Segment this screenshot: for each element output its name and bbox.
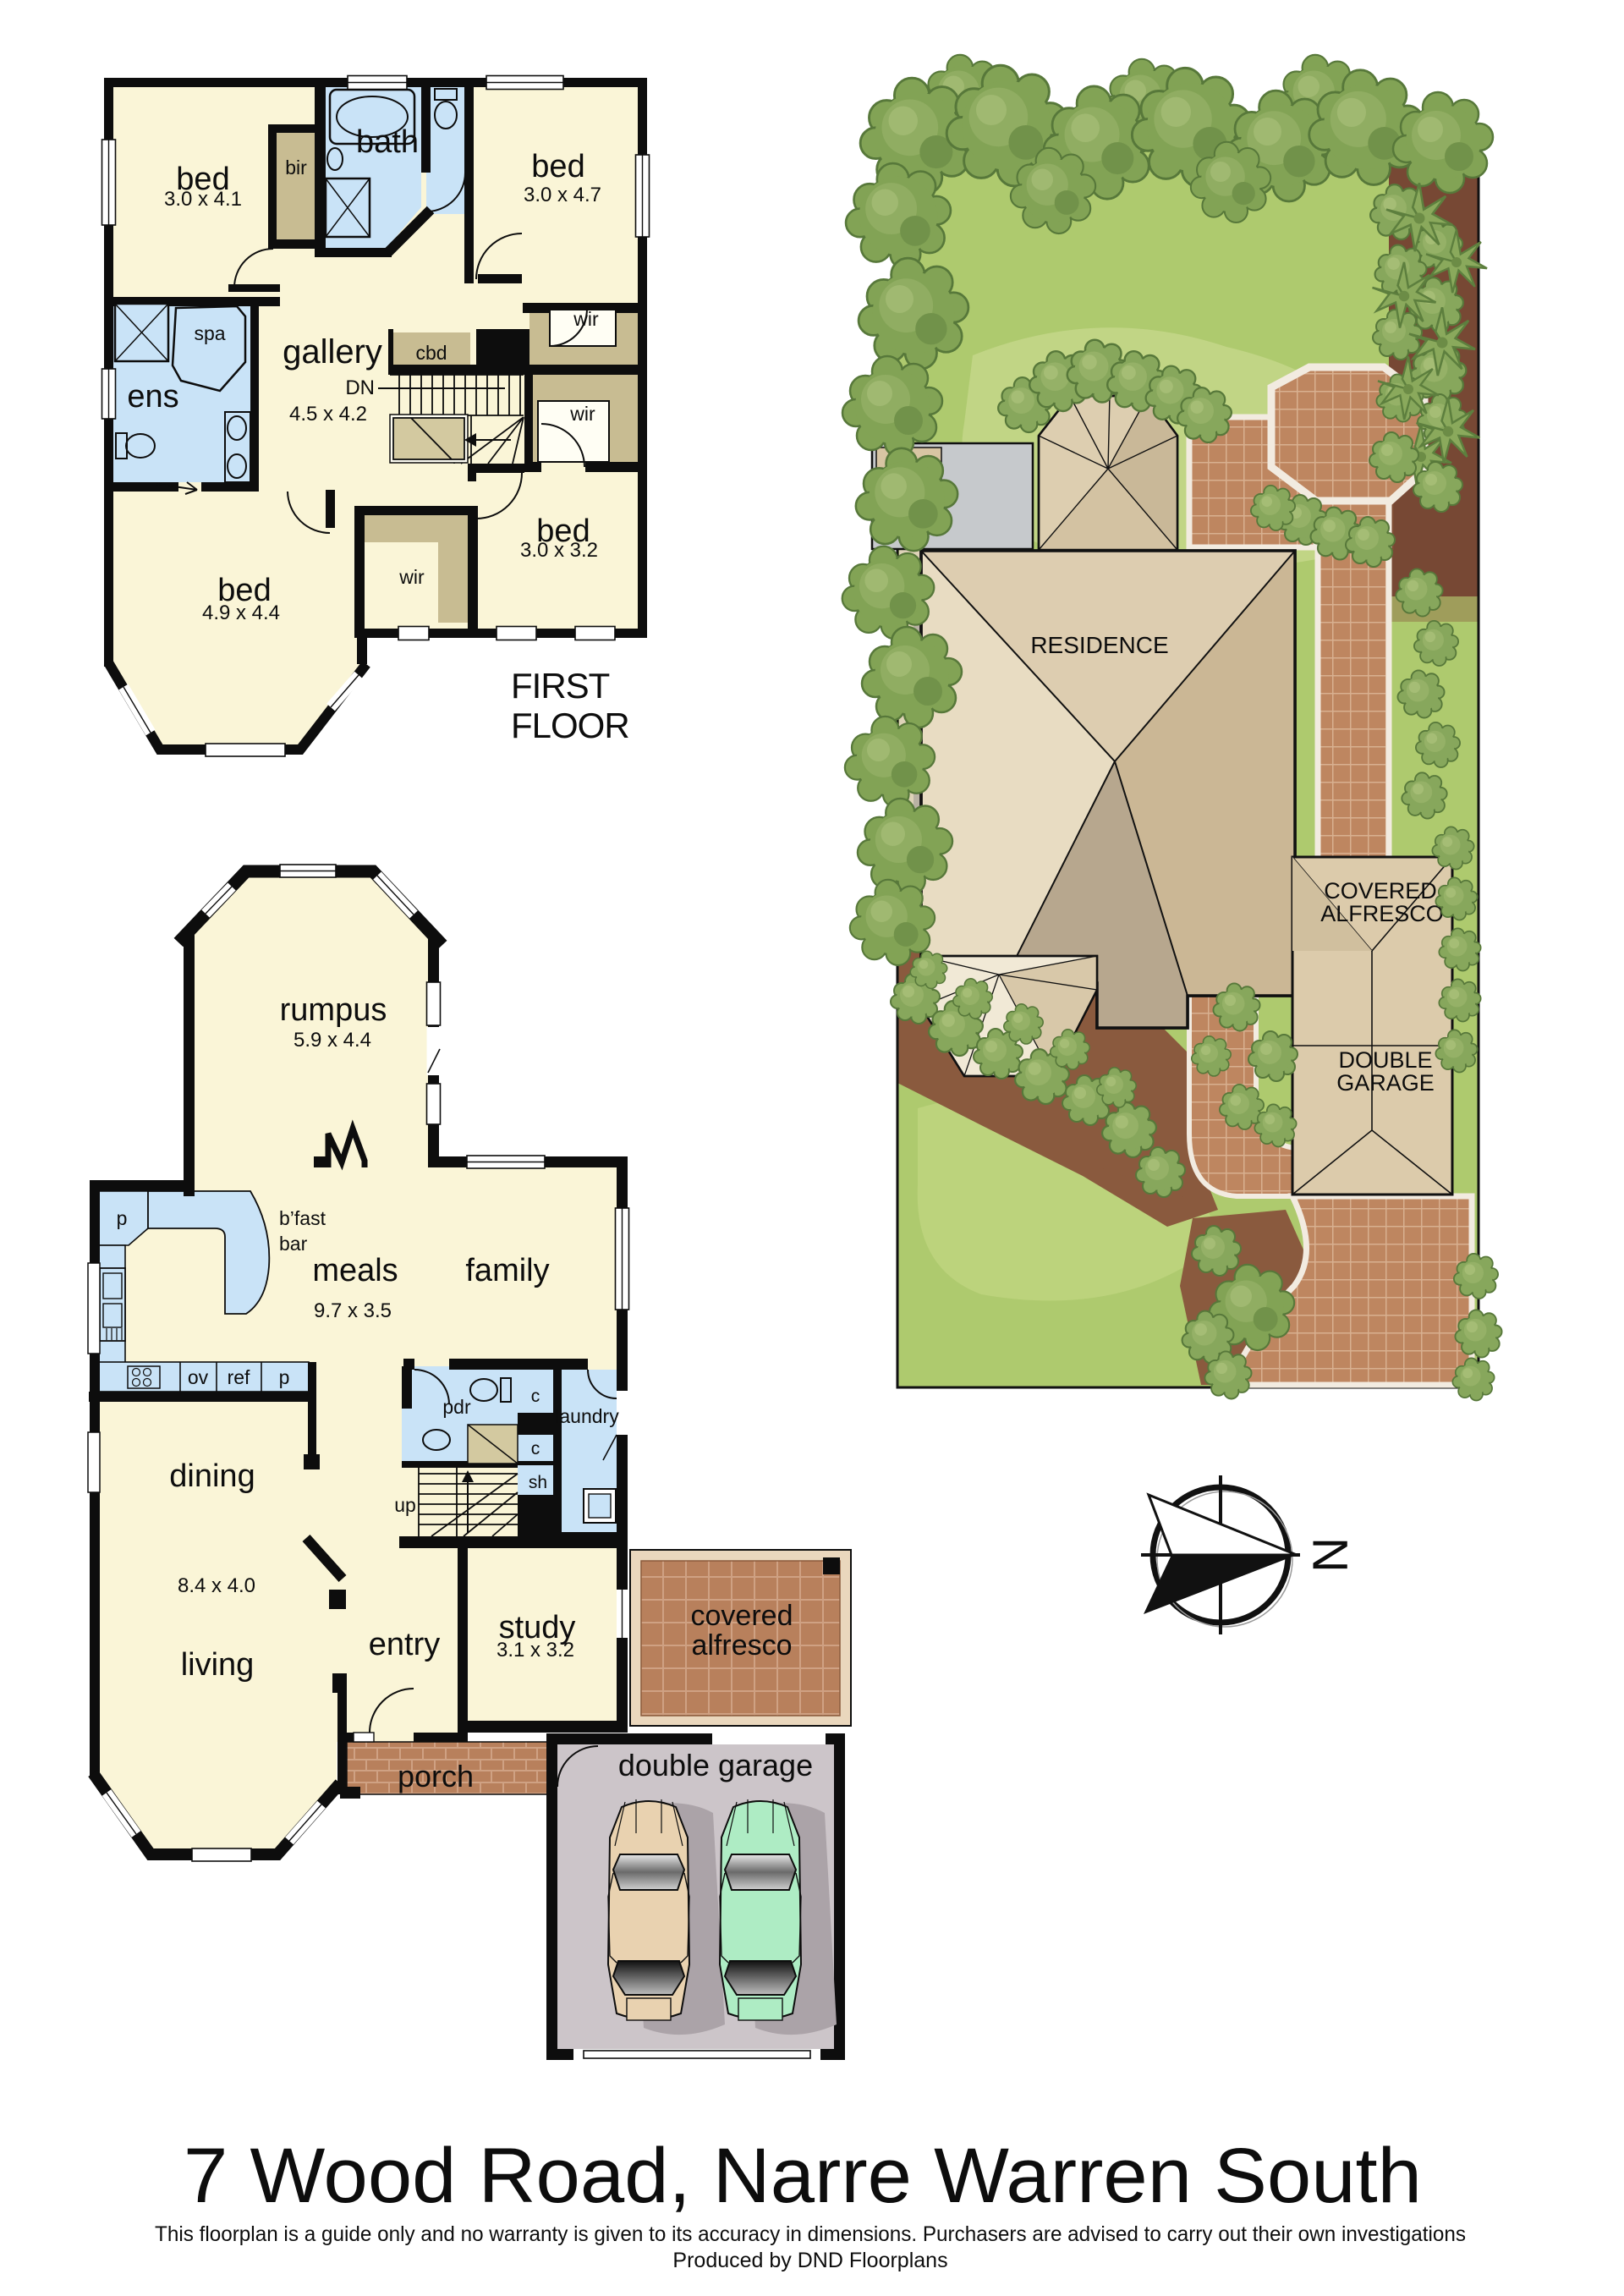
svg-text:Produced by DND Floorplans: Produced by DND Floorplans <box>672 2249 947 2272</box>
svg-text:DOUBLE: DOUBLE <box>1338 1047 1432 1073</box>
svg-text:porch: porch <box>398 1759 474 1793</box>
svg-text:4.5 x 4.2: 4.5 x 4.2 <box>289 403 367 426</box>
svg-text:entry: entry <box>369 1627 440 1662</box>
svg-text:bed: bed <box>531 149 584 184</box>
svg-text:7 Wood Road, Narre Warren Sout: 7 Wood Road, Narre Warren South <box>184 2133 1422 2219</box>
svg-text:up: up <box>394 1494 416 1516</box>
svg-text:pdr: pdr <box>442 1396 471 1418</box>
svg-text:spa: spa <box>194 322 225 344</box>
svg-text:wir: wir <box>398 566 425 588</box>
svg-text:b’fast: b’fast <box>279 1207 326 1229</box>
svg-text:wir: wir <box>569 403 595 425</box>
svg-text:family: family <box>465 1253 549 1288</box>
svg-text:c: c <box>531 1387 540 1406</box>
svg-text:bar: bar <box>279 1233 308 1255</box>
svg-text:ov: ov <box>188 1366 209 1388</box>
svg-text:living: living <box>181 1647 255 1683</box>
svg-text:DN: DN <box>345 376 375 399</box>
svg-text:alfresco: alfresco <box>691 1629 792 1662</box>
svg-text:ALFRESCO: ALFRESCO <box>1320 901 1444 926</box>
svg-text:N: N <box>1303 1537 1358 1573</box>
svg-text:double garage: double garage <box>618 1748 813 1782</box>
svg-text:COVERED: COVERED <box>1324 878 1437 904</box>
svg-text:GARAGE: GARAGE <box>1336 1070 1435 1096</box>
svg-text:FIRST: FIRST <box>511 666 610 706</box>
svg-text:5.9 x 4.4: 5.9 x 4.4 <box>294 1029 371 1052</box>
svg-text:p: p <box>117 1207 128 1229</box>
svg-text:dining: dining <box>169 1458 255 1494</box>
svg-text:3.0 x 3.2: 3.0 x 3.2 <box>520 539 598 562</box>
svg-text:8.4 x 4.0: 8.4 x 4.0 <box>178 1574 255 1597</box>
svg-text:RESIDENCE: RESIDENCE <box>1030 632 1168 658</box>
svg-text:sh: sh <box>529 1473 547 1492</box>
svg-text:laundry: laundry <box>555 1405 619 1427</box>
svg-text:cbd: cbd <box>415 342 447 364</box>
svg-text:bath: bath <box>356 124 419 160</box>
svg-text:wir: wir <box>573 308 599 330</box>
svg-text:gallery: gallery <box>283 333 382 371</box>
svg-text:covered: covered <box>691 1600 793 1632</box>
svg-text:ens: ens <box>127 379 178 415</box>
svg-text:rumpus: rumpus <box>280 992 387 1028</box>
svg-text:4.9 x 4.4: 4.9 x 4.4 <box>202 601 280 624</box>
svg-text:FLOOR: FLOOR <box>511 706 629 745</box>
svg-text:c: c <box>531 1439 540 1458</box>
svg-text:3.0 x 4.1: 3.0 x 4.1 <box>164 188 242 211</box>
svg-text:meals: meals <box>312 1253 398 1288</box>
svg-text:9.7 x 3.5: 9.7 x 3.5 <box>314 1299 392 1322</box>
svg-text:3.0 x 4.7: 3.0 x 4.7 <box>524 184 601 206</box>
svg-text:This floorplan is a guide only: This floorplan is a guide only and no wa… <box>155 2222 1466 2246</box>
svg-text:bir: bir <box>285 157 307 179</box>
svg-text:ref: ref <box>228 1366 250 1388</box>
svg-text:3.1 x 3.2: 3.1 x 3.2 <box>497 1639 574 1662</box>
svg-text:p: p <box>279 1366 290 1388</box>
